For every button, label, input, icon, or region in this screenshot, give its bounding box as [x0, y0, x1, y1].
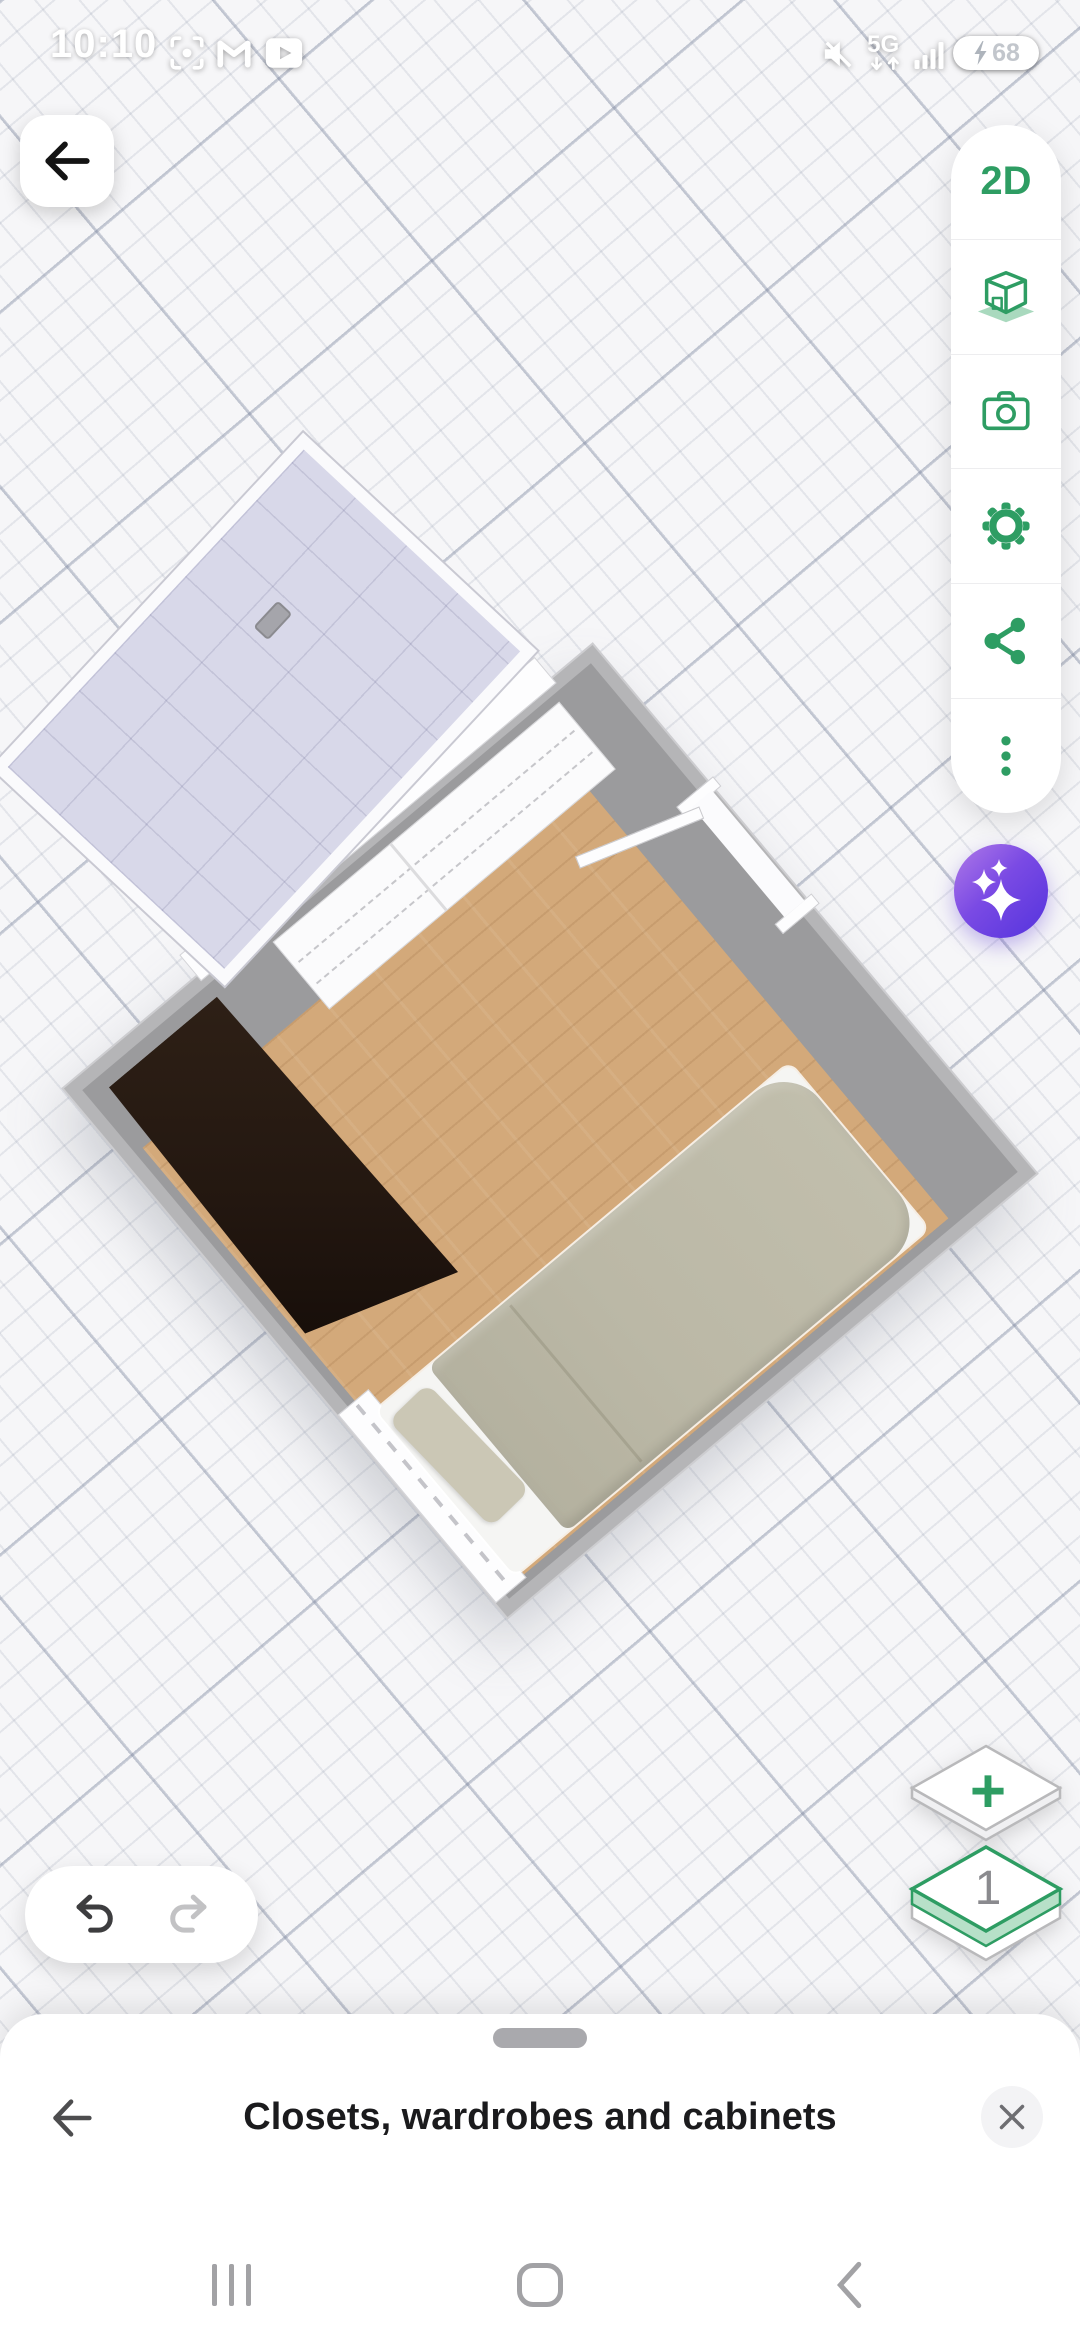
sheet-close-button[interactable] — [981, 2086, 1043, 2148]
window-handle-icon — [253, 600, 292, 640]
settings-button[interactable] — [951, 468, 1061, 583]
sheet-title: Closets, wardrobes and cabinets — [140, 2096, 940, 2139]
back-button[interactable] — [20, 115, 114, 207]
svg-text:5G: 5G — [867, 31, 899, 58]
close-icon — [998, 2103, 1026, 2131]
design-canvas[interactable] — [64, 645, 1036, 1617]
nav-recents-button[interactable] — [196, 2250, 266, 2320]
nav-back-button[interactable] — [814, 2250, 884, 2320]
floor-number-label: 1 — [958, 1862, 1018, 1916]
arrow-left-icon — [47, 2093, 97, 2143]
screenshot-icon — [168, 34, 206, 72]
share-button[interactable] — [951, 583, 1061, 698]
gear-icon — [977, 497, 1035, 555]
battery-icon: 68 — [953, 36, 1039, 70]
nav-home-button[interactable] — [505, 2250, 575, 2320]
system-nav-bar — [0, 2230, 1080, 2340]
undo-icon[interactable] — [71, 1890, 121, 1940]
ai-assistant-button[interactable] — [954, 844, 1048, 938]
view-3d-button[interactable] — [951, 239, 1061, 354]
youtube-icon — [262, 36, 306, 70]
app-screen: { "status_bar": { "time": "10:10", "netw… — [0, 0, 1080, 2340]
charging-bolt-icon — [972, 40, 989, 66]
cube-3d-icon — [975, 266, 1037, 328]
clock: 10:10 — [50, 22, 157, 67]
toggle-2d-button[interactable]: 2D — [951, 125, 1061, 239]
gmail-icon — [214, 34, 254, 72]
camera-icon — [977, 383, 1035, 441]
sheet-drag-handle[interactable] — [493, 2028, 587, 2048]
network-5g-icon: 5G — [864, 30, 908, 76]
more-dots-icon — [979, 729, 1033, 783]
recents-icon — [212, 2264, 251, 2306]
back-chevron-icon — [829, 2259, 869, 2311]
redo-icon[interactable] — [162, 1890, 212, 1940]
toggle-2d-label: 2D — [980, 159, 1031, 204]
home-icon — [517, 2263, 563, 2307]
more-options-button[interactable] — [951, 698, 1061, 813]
view-toolbar: 2D — [951, 125, 1061, 813]
sparkles-icon — [954, 844, 1048, 938]
add-floor-label: + — [958, 1762, 1018, 1822]
signal-icon — [912, 38, 948, 70]
share-icon — [979, 614, 1033, 668]
mute-icon — [822, 38, 854, 70]
status-bar: 10:10 5G 68 — [0, 0, 1080, 72]
snapshot-button[interactable] — [951, 354, 1061, 469]
sheet-back-button[interactable] — [44, 2090, 100, 2146]
arrow-left-icon — [40, 134, 94, 188]
history-controls — [25, 1866, 258, 1963]
battery-percent: 68 — [992, 39, 1020, 68]
